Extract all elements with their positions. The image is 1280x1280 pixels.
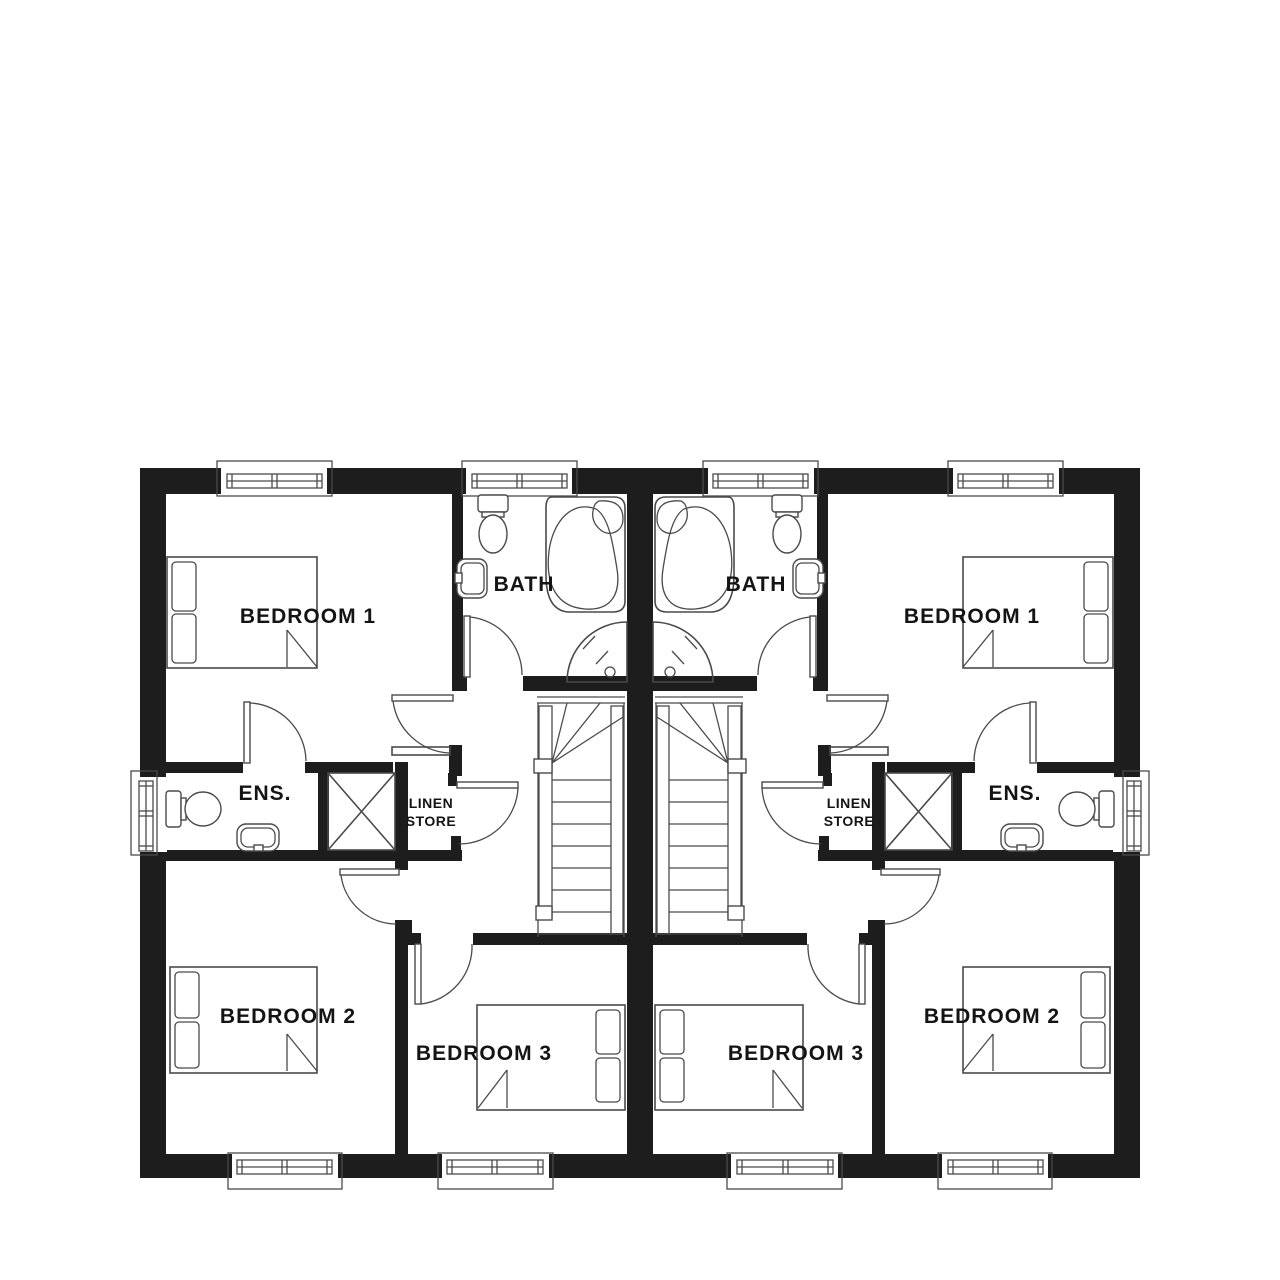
room-label-bath-left: BATH xyxy=(494,573,555,597)
right-unit-plan xyxy=(640,461,1149,1189)
linen-label-line2: STORE xyxy=(824,812,874,830)
floor-plan-svg xyxy=(0,0,1280,1280)
room-label-bedroom3-left: BEDROOM 3 xyxy=(416,1042,552,1066)
left-unit-plan xyxy=(131,461,640,1189)
room-label-linen-left: LINEN STORE xyxy=(406,794,456,830)
room-label-bedroom2-left: BEDROOM 2 xyxy=(220,1005,356,1029)
floorplan-canvas: BEDROOM 1 BATH ENS. LINEN STORE BEDROOM … xyxy=(0,0,1280,1280)
room-label-bath-right: BATH xyxy=(726,573,787,597)
room-label-bedroom1-right: BEDROOM 1 xyxy=(904,605,1040,629)
room-label-bedroom1-left: BEDROOM 1 xyxy=(240,605,376,629)
room-label-bedroom2-right: BEDROOM 2 xyxy=(924,1005,1060,1029)
room-label-linen-right: LINEN STORE xyxy=(824,794,874,830)
linen-label-line1: LINEN xyxy=(406,794,456,812)
room-label-ens-left: ENS. xyxy=(238,782,291,806)
room-label-bedroom3-right: BEDROOM 3 xyxy=(728,1042,864,1066)
linen-label-line2: STORE xyxy=(406,812,456,830)
linen-label-line1: LINEN xyxy=(824,794,874,812)
room-label-ens-right: ENS. xyxy=(988,782,1041,806)
